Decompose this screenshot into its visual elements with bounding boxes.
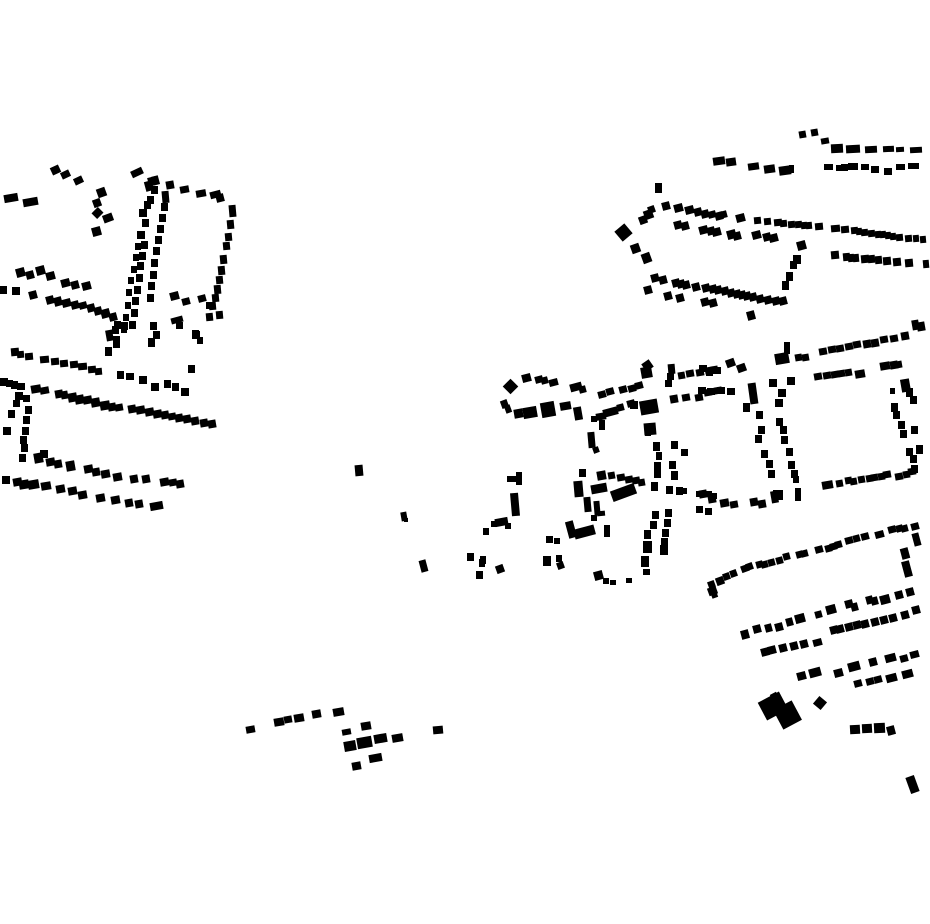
building-footprint — [522, 406, 538, 419]
building-footprint — [105, 347, 112, 356]
building-footprint — [139, 252, 146, 260]
building-footprint — [159, 214, 166, 222]
building-footprint — [801, 353, 809, 361]
building-footprint — [641, 252, 653, 264]
building-footprint — [905, 259, 914, 268]
building-footprint — [419, 559, 429, 572]
building-footprint — [665, 509, 672, 517]
building-footprint — [900, 331, 909, 340]
building-footprint — [871, 166, 879, 173]
building-footprint — [680, 488, 687, 494]
building-footprint — [137, 231, 145, 239]
building-footprint — [142, 219, 149, 227]
building-footprint — [91, 467, 100, 476]
building-footprint — [896, 147, 904, 152]
building-footprint — [643, 541, 652, 553]
building-footprint — [133, 254, 139, 261]
building-footprint — [45, 271, 56, 281]
building-footprint — [554, 538, 560, 544]
building-footprint — [889, 334, 898, 342]
building-footprint — [916, 445, 923, 454]
building-footprint — [13, 400, 20, 407]
building-footprint — [112, 326, 119, 334]
building-footprint — [218, 266, 226, 276]
building-footprint — [17, 383, 25, 390]
building-footprint — [870, 596, 879, 606]
building-footprint — [40, 356, 50, 364]
building-footprint — [20, 436, 27, 444]
building-footprint — [640, 366, 653, 379]
building-footprint — [491, 521, 497, 527]
building-footprint — [696, 506, 703, 513]
building-footprint — [141, 474, 150, 483]
building-footprint — [433, 726, 444, 735]
building-footprint — [141, 241, 148, 249]
building-footprint — [853, 679, 863, 688]
building-footprint — [124, 498, 133, 507]
building-footprint — [131, 266, 137, 273]
building-footprint — [879, 615, 889, 625]
building-footprint — [774, 352, 790, 365]
building-footprint — [2, 476, 10, 484]
building-footprint — [60, 278, 71, 288]
building-footprint — [886, 725, 896, 736]
building-footprint — [332, 707, 344, 717]
building-footprint — [909, 650, 920, 659]
building-footprint — [179, 185, 189, 193]
building-footprint — [151, 186, 158, 194]
building-footprint — [132, 297, 139, 305]
building-footprint — [95, 493, 105, 502]
building-footprint — [800, 549, 809, 558]
building-footprint — [752, 624, 762, 634]
building-footprint — [660, 545, 668, 555]
building-footprint — [130, 167, 144, 178]
building-footprint — [874, 530, 885, 539]
building-footprint — [81, 281, 92, 291]
building-footprint — [717, 387, 725, 394]
building-footprint — [776, 418, 783, 426]
building-footprint — [505, 523, 511, 529]
building-footprint — [846, 145, 860, 154]
building-footprint — [645, 429, 651, 436]
building-footprint — [651, 482, 658, 491]
building-footprint — [653, 442, 660, 451]
building-footprint — [129, 474, 138, 483]
building-footprint — [121, 322, 128, 330]
building-footprint — [139, 376, 147, 384]
building-footprint — [890, 388, 895, 394]
building-footprint — [854, 369, 865, 379]
building-footprint — [910, 396, 917, 404]
building-footprint — [788, 461, 795, 469]
building-footprint — [630, 243, 642, 255]
building-footprint — [760, 647, 770, 657]
building-footprint — [685, 369, 694, 377]
building-footprint — [25, 406, 32, 414]
building-footprint — [896, 234, 904, 242]
building-footprint — [850, 602, 859, 612]
building-footprint — [705, 508, 712, 515]
building-footprint — [467, 553, 474, 561]
building-footprint — [725, 157, 736, 166]
building-footprint — [126, 289, 132, 296]
building-footprint — [814, 610, 823, 619]
map-canvas — [0, 0, 930, 924]
building-footprint — [908, 163, 919, 169]
building-footprint — [100, 469, 110, 478]
building-footprint — [126, 373, 134, 380]
building-footprint — [669, 394, 678, 403]
building-footprint — [775, 399, 783, 407]
building-footprint — [136, 274, 143, 282]
building-footprint — [785, 617, 794, 627]
building-footprint — [605, 387, 615, 396]
building-footprint — [831, 144, 843, 154]
building-footprint — [694, 393, 703, 401]
building-footprint — [898, 421, 905, 429]
building-footprint — [27, 479, 39, 490]
building-footprint — [746, 310, 756, 321]
building-footprint — [643, 285, 653, 295]
building-footprint — [916, 321, 925, 331]
building-footprint — [28, 290, 38, 300]
building-footprint — [888, 613, 898, 623]
building-footprint — [895, 361, 902, 369]
building-footprint — [812, 638, 823, 647]
building-footprint — [899, 654, 909, 663]
building-footprint — [207, 419, 216, 428]
building-footprint — [813, 372, 822, 380]
building-footprint — [503, 379, 519, 395]
building-footprint — [796, 240, 807, 251]
building-footprint — [725, 358, 736, 369]
building-footprint — [114, 403, 123, 411]
building-footprint — [707, 388, 715, 395]
building-footprint — [603, 578, 609, 584]
building-footprint — [161, 203, 168, 211]
building-footprint — [604, 525, 610, 537]
building-footprint — [757, 499, 766, 508]
building-footprint — [873, 675, 883, 684]
building-footprint — [883, 146, 894, 153]
building-footprint — [666, 486, 673, 494]
building-footprint — [55, 484, 65, 493]
building-footprint — [870, 617, 880, 627]
building-footprint — [215, 193, 225, 203]
building-footprint — [825, 604, 837, 615]
building-footprint — [144, 201, 151, 209]
building-footprint — [91, 226, 102, 237]
building-footprint — [893, 258, 902, 267]
building-footprint — [740, 629, 750, 640]
building-footprint — [905, 775, 919, 794]
building-footprint — [102, 213, 114, 224]
building-footprint — [227, 220, 235, 230]
building-footprint — [831, 225, 841, 233]
building-footprint — [743, 403, 750, 412]
building-footprint — [590, 483, 607, 495]
building-footprint — [748, 162, 760, 170]
building-footprint — [639, 399, 659, 416]
building-footprint — [870, 338, 879, 347]
building-footprint — [911, 426, 918, 434]
building-footprint — [894, 590, 904, 600]
building-footprint — [751, 230, 762, 240]
building-footprint — [521, 373, 532, 383]
building-footprint — [755, 435, 762, 443]
building-footprint — [148, 282, 155, 290]
building-footprint — [175, 479, 184, 488]
building-footprint — [900, 524, 909, 533]
building-footprint — [151, 259, 158, 267]
building-footprint — [216, 311, 224, 320]
building-footprint — [149, 501, 163, 511]
building-footprint — [786, 448, 793, 456]
building-footprint — [789, 641, 799, 651]
building-footprint — [634, 381, 644, 390]
building-footprint — [181, 388, 189, 396]
building-footprint — [713, 367, 721, 374]
building-footprint — [879, 594, 891, 605]
building-footprint — [681, 280, 691, 290]
building-footprint — [614, 223, 632, 241]
building-footprint — [225, 233, 233, 242]
building-footprint — [748, 383, 759, 405]
building-footprint — [794, 613, 806, 624]
building-footprint — [852, 340, 861, 348]
building-footprint — [781, 436, 788, 444]
building-footprint — [652, 511, 659, 519]
building-footprint — [706, 369, 713, 376]
building-footprint — [351, 761, 361, 770]
building-footprint — [587, 432, 595, 449]
building-footprint — [874, 723, 886, 734]
building-footprint — [847, 661, 861, 673]
building-footprint — [206, 302, 213, 309]
building-footprint — [857, 475, 865, 483]
building-footprint — [671, 441, 678, 449]
building-footprint — [835, 344, 844, 352]
building-footprint — [782, 552, 791, 561]
building-footprint — [165, 180, 174, 189]
building-footprint — [67, 486, 77, 495]
building-footprint — [763, 164, 775, 173]
building-footprint — [356, 736, 373, 749]
building-footprint — [920, 236, 927, 243]
building-footprint — [911, 605, 921, 615]
building-footprint — [879, 335, 888, 343]
building-footprint — [161, 191, 169, 204]
building-footprint — [729, 569, 738, 578]
building-footprint — [789, 165, 794, 173]
building-footprint — [610, 580, 616, 585]
building-footprint — [865, 474, 873, 482]
building-footprint — [25, 270, 35, 280]
building-footprint — [35, 265, 46, 276]
building-footprint — [673, 203, 684, 213]
building-footprint — [193, 331, 200, 339]
building-footprint — [495, 564, 505, 574]
building-footprint — [176, 322, 183, 329]
building-footprint — [626, 578, 632, 583]
building-footprint — [151, 383, 159, 391]
building-footprint — [343, 740, 357, 752]
building-footprint — [644, 530, 651, 539]
building-footprint — [655, 183, 662, 193]
building-footprint — [543, 556, 551, 566]
building-footprint — [599, 420, 605, 430]
building-footprint — [65, 460, 76, 471]
building-footprint — [610, 483, 637, 502]
building-footprint — [96, 187, 108, 199]
building-footprint — [293, 713, 304, 723]
building-footprint — [60, 169, 71, 179]
building-footprint — [342, 728, 352, 735]
building-footprint — [764, 623, 773, 633]
building-footprint — [910, 147, 922, 154]
building-footprint — [139, 209, 147, 217]
building-footprint — [137, 262, 144, 270]
building-footprint — [123, 314, 129, 321]
building-footprint — [698, 387, 706, 394]
building-footprint — [905, 235, 913, 243]
building-footprint — [711, 227, 722, 237]
building-footprint — [546, 536, 553, 543]
building-footprint — [814, 545, 824, 554]
building-footprint — [110, 495, 120, 504]
building-footprint — [476, 571, 483, 579]
building-footprint — [841, 226, 850, 234]
building-footprint — [745, 562, 754, 571]
building-footprint — [150, 271, 157, 279]
building-footprint — [507, 476, 517, 482]
building-footprint — [607, 471, 615, 479]
building-footprint — [134, 499, 143, 508]
building-footprint — [815, 223, 824, 231]
building-footprint — [782, 281, 789, 290]
building-footprint — [135, 243, 141, 250]
building-footprint — [841, 164, 848, 171]
building-footprint — [53, 459, 62, 468]
building-footprint — [658, 275, 668, 285]
building-footprint — [596, 470, 606, 480]
building-footprint — [40, 450, 48, 458]
building-footprint — [795, 495, 801, 501]
building-footprint — [852, 534, 861, 543]
building-footprint — [559, 401, 571, 411]
building-footprint — [597, 511, 605, 517]
building-footprint — [681, 393, 690, 401]
building-footprint — [129, 321, 136, 329]
building-footprint — [583, 497, 591, 513]
building-footprint — [713, 156, 726, 166]
building-footprint — [656, 452, 662, 460]
building-footprint — [798, 130, 806, 138]
building-footprint — [355, 465, 364, 477]
building-footprint — [896, 164, 905, 170]
building-footprint — [786, 272, 793, 281]
building-footprint — [732, 231, 742, 241]
building-footprint — [17, 351, 25, 359]
building-footprint — [821, 137, 830, 144]
building-footprint — [663, 291, 673, 301]
building-footprint — [865, 146, 877, 154]
building-footprint — [283, 715, 292, 723]
building-footprint — [799, 639, 809, 649]
building-footprint — [862, 724, 872, 734]
building-footprint — [195, 189, 206, 198]
building-footprint — [223, 242, 231, 251]
building-footprint — [311, 709, 321, 718]
building-footprint — [769, 379, 777, 387]
building-footprint — [73, 175, 84, 185]
building-footprint — [669, 461, 676, 469]
building-footprint — [821, 480, 833, 490]
building-footprint — [373, 733, 387, 744]
building-footprint — [0, 286, 7, 294]
building-footprint — [181, 297, 191, 306]
building-footprint — [665, 380, 672, 387]
building-footprint — [21, 444, 28, 452]
building-footprint — [735, 213, 746, 223]
building-footprint — [727, 388, 735, 395]
building-footprint — [719, 498, 729, 507]
building-footprint — [578, 385, 587, 394]
building-footprint — [813, 696, 827, 710]
building-footprint — [131, 309, 138, 317]
building-footprint — [206, 313, 214, 322]
building-footprint — [810, 128, 818, 136]
building-footprint — [643, 569, 650, 575]
building-footprint — [637, 478, 645, 486]
building-footprint — [677, 371, 685, 379]
building-footprint — [861, 164, 869, 170]
building-footprint — [404, 518, 408, 522]
building-footprint — [848, 163, 858, 170]
building-footprint — [818, 347, 827, 355]
building-footprint — [172, 383, 179, 391]
building-footprint — [758, 426, 765, 434]
building-footprint — [360, 721, 371, 731]
building-footprint — [884, 653, 897, 664]
building-footprint — [808, 667, 822, 679]
building-footprint — [169, 291, 180, 301]
building-footprint — [691, 282, 701, 292]
building-footprint — [134, 286, 141, 294]
building-footprint — [698, 489, 707, 498]
building-footprint — [778, 643, 788, 653]
building-footprint — [22, 427, 29, 435]
building-footprint — [850, 725, 860, 735]
building-footprint — [641, 556, 649, 567]
building-footprint — [95, 368, 103, 376]
building-footprint — [19, 454, 26, 462]
building-footprint — [901, 560, 913, 578]
building-footprint — [664, 519, 671, 527]
building-footprint — [662, 529, 669, 537]
building-footprint — [910, 455, 917, 463]
building-footprint — [153, 247, 160, 255]
building-footprint — [905, 587, 915, 597]
building-footprint — [573, 481, 583, 498]
building-footprint — [913, 235, 920, 242]
building-footprint — [51, 358, 60, 366]
building-footprint — [675, 293, 685, 303]
building-footprint — [844, 368, 852, 376]
building-footprint — [548, 378, 559, 387]
building-footprint — [736, 363, 747, 374]
